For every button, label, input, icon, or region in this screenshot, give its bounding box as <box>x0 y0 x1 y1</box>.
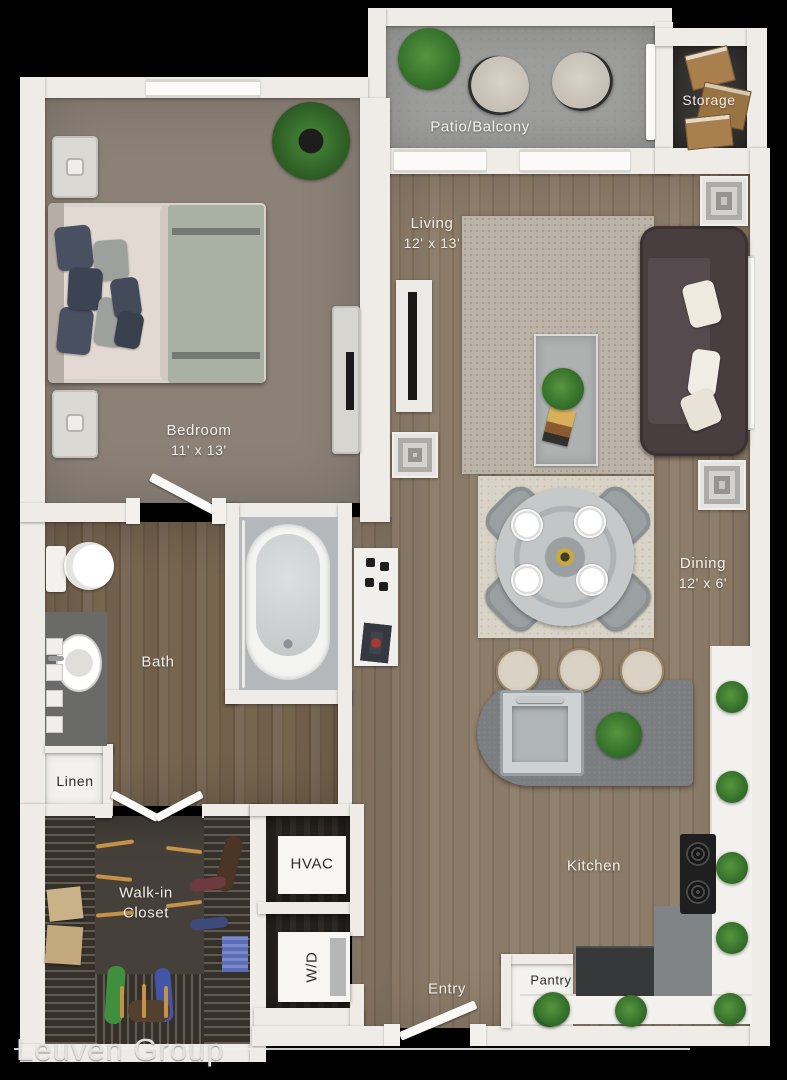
closet-storage-box <box>45 925 84 965</box>
patio-plant <box>398 28 460 90</box>
room-label-text: W/D <box>303 952 320 983</box>
pantry-plant <box>536 992 570 1026</box>
room-label-bath: Bath <box>141 652 174 672</box>
counter-plant <box>716 681 748 713</box>
room-dims-text: 12' x 6' <box>679 574 727 592</box>
toilet-bowl <box>64 542 114 590</box>
blanket-band <box>172 228 260 235</box>
wall <box>476 1026 752 1046</box>
watermark: Leuven Group <box>16 1032 224 1068</box>
vanity-drawer <box>46 664 63 681</box>
room-dims-text: 12' x 13' <box>404 234 461 252</box>
hanger <box>120 986 124 1018</box>
wall <box>225 503 352 517</box>
room-label-text: Walk-in <box>119 885 173 902</box>
counter-plant <box>716 771 748 803</box>
room-label-closet: Walk-inCloset <box>119 884 173 923</box>
plate <box>511 509 543 541</box>
toiletry-bottle <box>380 562 389 571</box>
end-table <box>698 460 746 510</box>
book-emblem <box>371 638 381 648</box>
bar-stool <box>558 648 602 692</box>
wall <box>20 503 133 522</box>
toiletry-bottle <box>366 558 375 567</box>
counter-plant <box>714 993 746 1025</box>
stove-burner <box>686 880 710 904</box>
table-centerpiece <box>556 548 574 566</box>
room-label-text: Closet <box>119 903 173 923</box>
hanger <box>164 986 168 1018</box>
base-cabinet <box>576 946 654 996</box>
wall <box>20 77 45 817</box>
shower-curtain <box>242 520 245 688</box>
nightstand-decor <box>66 158 84 176</box>
room-label-text: Patio/Balcony <box>430 118 530 135</box>
side-table <box>392 432 438 478</box>
room-label-text: Entry <box>428 980 466 997</box>
bedroom-window <box>146 80 260 97</box>
kitchen-counter-corner <box>654 906 712 996</box>
room-label-kitchen: Kitchen <box>567 856 621 876</box>
vanity-faucet <box>48 656 64 661</box>
coffee-table-plant <box>542 368 584 410</box>
sink-faucet <box>516 696 564 703</box>
wall <box>250 804 362 816</box>
vanity-drawer <box>46 638 63 655</box>
counter-plant <box>716 922 748 954</box>
wall <box>360 98 390 522</box>
watermark-text: Leuven Group <box>16 1032 224 1067</box>
bar-stool <box>620 649 664 693</box>
wall <box>338 503 352 813</box>
room-label-text: Kitchen <box>567 857 621 874</box>
room-label-text: Bedroom <box>166 422 231 439</box>
room-label-entry: Entry <box>428 979 466 999</box>
living-window <box>520 150 630 172</box>
vanity-drawer <box>46 690 63 707</box>
dining-window <box>747 256 754 430</box>
folded-shirt <box>222 936 248 972</box>
washer-lid <box>330 938 346 996</box>
end-table <box>700 176 748 226</box>
room-label-text: Dining <box>680 555 726 572</box>
stove-burner <box>686 842 710 866</box>
patio-sliding-door <box>394 150 486 172</box>
room-label-text: Pantry <box>530 973 571 988</box>
wall <box>20 804 45 1062</box>
room-label-pantry: Pantry <box>530 973 571 990</box>
island-plant <box>596 712 642 758</box>
wall <box>252 1026 400 1046</box>
wall <box>368 8 672 26</box>
bed-pillow <box>54 224 94 272</box>
room-label-wd: W/D <box>302 952 322 983</box>
door-jamb <box>384 1024 400 1046</box>
storage-box <box>684 114 733 151</box>
living-tv <box>408 292 417 400</box>
toiletry-bottle <box>379 582 388 591</box>
door-jamb <box>470 1024 486 1046</box>
floor-plan: Patio/Balcony Storage Living12' x 13' Be… <box>0 0 787 1080</box>
door-jamb <box>212 498 226 524</box>
sink-basin <box>512 706 568 762</box>
storage-door <box>646 44 655 140</box>
bar-stool <box>496 649 540 693</box>
room-label-living: Living12' x 13' <box>404 214 461 252</box>
room-label-text: Living <box>411 215 454 232</box>
nightstand-decor <box>66 414 84 432</box>
room-label-text: Bath <box>141 653 174 670</box>
bed-pillow <box>56 306 95 355</box>
bedroom-tv <box>346 352 354 410</box>
plate <box>511 564 543 596</box>
wall <box>258 902 354 914</box>
room-label-dining: Dining12' x 6' <box>679 554 727 592</box>
blanket-band <box>172 352 260 359</box>
plate <box>574 506 606 538</box>
room-label-patio: Patio/Balcony <box>430 117 530 137</box>
vanity-drawer <box>46 716 63 733</box>
room-label-text: Storage <box>682 92 735 108</box>
room-label-linen: Linen <box>56 772 93 790</box>
wall <box>225 503 239 704</box>
counter-plant <box>615 995 647 1027</box>
wall <box>225 690 352 704</box>
room-label-bedroom: Bedroom11' x 13' <box>166 421 231 459</box>
wall <box>254 1008 364 1028</box>
wall <box>747 28 767 150</box>
toiletry-bottle <box>365 578 374 587</box>
wall <box>501 954 511 1028</box>
wall <box>350 804 364 936</box>
counter-plant <box>716 852 748 884</box>
room-label-hvac: HVAC <box>291 854 334 874</box>
wall <box>501 954 573 964</box>
toilet-tank <box>46 546 66 592</box>
tub-drain <box>280 636 296 652</box>
door-jamb <box>126 498 140 524</box>
plate <box>576 564 608 596</box>
room-label-text: Linen <box>56 773 93 789</box>
room-label-text: HVAC <box>291 855 334 872</box>
closet-storage-box <box>46 886 83 921</box>
wall <box>350 984 364 1028</box>
room-label-storage: Storage <box>682 91 735 109</box>
bedroom-plant <box>272 102 350 180</box>
hanger <box>142 984 146 1018</box>
room-dims-text: 11' x 13' <box>166 441 231 459</box>
